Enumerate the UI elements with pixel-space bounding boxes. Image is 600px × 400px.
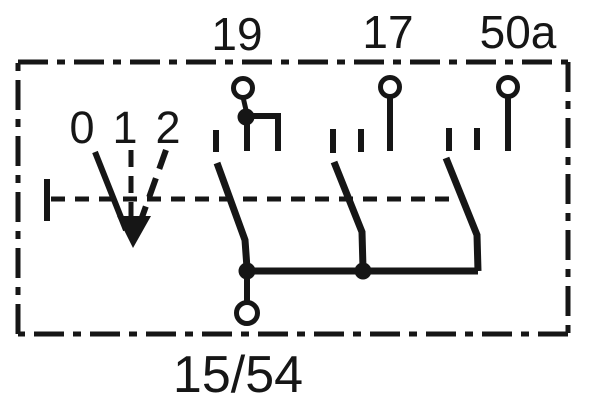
terminal-17-circle [381, 78, 400, 97]
terminal-19-circle [234, 79, 253, 98]
terminal-label-50a: 50a [480, 6, 557, 58]
bus-junction-dot-2 [355, 263, 372, 280]
terminal-label-19: 19 [211, 8, 262, 60]
terminal-label-15-54: 15/54 [173, 346, 303, 400]
position-arrowhead [117, 216, 151, 248]
switch-arm-1 [217, 163, 247, 268]
terminal-label-17: 17 [362, 6, 413, 58]
schematic-canvas: 19 17 50a 15/54 0 1 2 [0, 0, 600, 400]
position-label-1: 1 [112, 102, 137, 153]
position-label-0: 0 [69, 102, 94, 153]
switch-arm-2 [334, 162, 363, 268]
terminal-15-54-circle [237, 303, 258, 324]
terminal-50a-circle [499, 78, 518, 97]
terminal-19-stem [243, 97, 246, 110]
switch-wiring-diagram: 19 17 50a 15/54 0 1 2 [0, 0, 600, 400]
position-2-stroke-dashed [141, 150, 166, 220]
switch-arm-3 [446, 158, 478, 271]
position-label-2: 2 [155, 102, 180, 153]
